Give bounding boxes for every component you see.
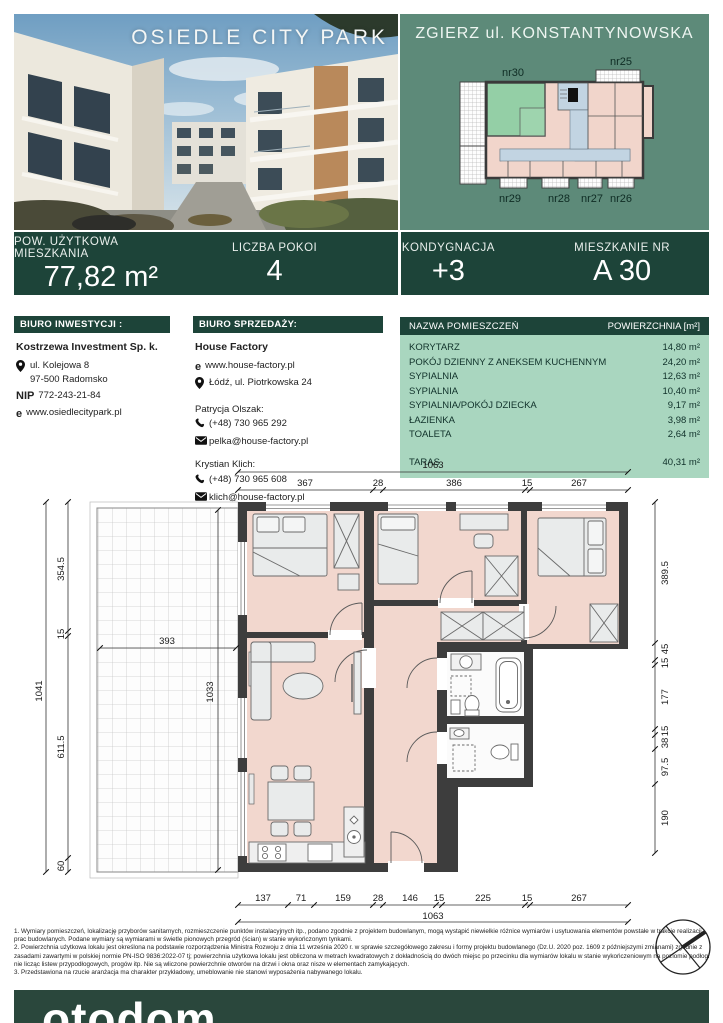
svg-text:225: 225 — [475, 893, 491, 904]
phone-icon — [195, 417, 209, 434]
svg-text:15: 15 — [434, 893, 445, 904]
location-panel: ZGIERZ ul. KONSTANTYNOWSKA — [400, 14, 709, 230]
flyer-page: OSIEDLE CITY PARK ZGIERZ ul. KONSTANTYNO… — [0, 0, 723, 1023]
table-row: SYPIALNIA12,63 m² — [400, 370, 709, 385]
agent-phone[interactable]: (+48) 730 965 292 — [209, 417, 383, 431]
svg-text:28: 28 — [373, 893, 384, 904]
web-prefix-icon: e — [16, 406, 22, 423]
key-balcony-nr25 — [596, 70, 640, 82]
svg-text:177: 177 — [660, 689, 671, 705]
svg-text:15: 15 — [56, 629, 67, 640]
svg-text:45: 45 — [660, 644, 671, 655]
svg-text:1041: 1041 — [34, 680, 45, 701]
investment-address-2: 97-500 Radomsko — [30, 374, 108, 385]
svg-text:354.5: 354.5 — [56, 557, 67, 581]
svg-text:15: 15 — [522, 893, 533, 904]
table-row: POKÓJ DZIENNY Z ANEKSEM KUCHENNYM24,20 m… — [400, 356, 709, 371]
otodom-logo: otodom — [42, 992, 217, 1023]
investment-office-card: BIURO INWESTYCJI : Kostrzewa Investment … — [14, 316, 170, 423]
svg-text:97.5: 97.5 — [660, 758, 671, 777]
investment-website[interactable]: www.osiedlecitypark.pl — [26, 406, 170, 420]
sales-website[interactable]: www.house-factory.pl — [205, 359, 383, 373]
legal-note-2: 2. Powierzchnia użytkowa lokalu jest okr… — [14, 944, 714, 969]
location-title: ZGIERZ ul. KONSTANTYNOWSKA — [400, 14, 709, 43]
summary-rooms-value: 4 — [267, 255, 283, 288]
summary-area-value: 77,82 m² — [44, 261, 158, 294]
summary-rooms-label: LICZBA POKOI — [232, 242, 317, 254]
sales-office-header: BIURO SPRZEDAŻY: — [193, 316, 383, 333]
svg-text:15: 15 — [522, 478, 533, 489]
footer-bar: otodom — [14, 990, 709, 1023]
sales-company: House Factory — [195, 340, 383, 356]
summary-area: POW. UŻYTKOWA MIESZKANIA 77,82 m² — [14, 232, 188, 295]
key-label-nr29: nr29 — [499, 193, 521, 205]
svg-text:367: 367 — [297, 478, 313, 489]
table-row: KORYTARZ14,80 m² — [400, 341, 709, 356]
mail-icon — [195, 435, 209, 450]
svg-text:15: 15 — [660, 726, 671, 737]
building-photo: OSIEDLE CITY PARK — [14, 14, 398, 230]
investment-office-header: BIURO INWESTYCJI : — [14, 316, 170, 333]
rooms-header-name: NAZWA POMIESZCZEŃ — [400, 321, 608, 332]
table-row: SYPIALNIA/POKÓJ DZIECKA9,17 m² — [400, 399, 709, 414]
table-row: SYPIALNIA10,40 m² — [400, 385, 709, 400]
svg-text:137: 137 — [255, 893, 271, 904]
key-label-nr28: nr28 — [548, 193, 570, 205]
svg-text:267: 267 — [571, 478, 587, 489]
summary-floor-label: KONDYGNACJA — [402, 242, 495, 254]
investment-company: Kostrzewa Investment Sp. k. — [16, 340, 170, 356]
key-label-nr30: nr30 — [502, 67, 524, 79]
svg-text:393: 393 — [159, 636, 175, 647]
summary-area-label: POW. UŻYTKOWA MIESZKANIA — [14, 236, 188, 260]
nip-value: 772-243-21-84 — [38, 388, 170, 403]
svg-text:386: 386 — [446, 478, 462, 489]
svg-text:1063: 1063 — [422, 460, 443, 471]
sales-address: Łódź, ul. Piotrkowska 24 — [209, 376, 383, 390]
svg-text:159: 159 — [335, 893, 351, 904]
table-row: TOALETA2,64 m² — [400, 428, 709, 443]
legal-notes: 1. Wymiary pomieszczeń, lokalizację przy… — [14, 928, 714, 977]
svg-text:190: 190 — [660, 810, 671, 826]
summary-rooms: LICZBA POKOI 4 — [188, 232, 362, 295]
svg-text:28: 28 — [373, 478, 384, 489]
location-pin-icon — [195, 376, 209, 394]
svg-text:146: 146 — [402, 893, 418, 904]
legal-note-1: 1. Wymiary pomieszczeń, lokalizację przy… — [14, 928, 714, 944]
summary-bar: POW. UŻYTKOWA MIESZKANIA 77,82 m² LICZBA… — [14, 232, 709, 295]
svg-text:71: 71 — [296, 893, 307, 904]
legal-note-3: 3. Przedstawiona na rzucie aranżacja ma … — [14, 969, 714, 977]
svg-text:389.5: 389.5 — [660, 561, 671, 585]
summary-separator — [398, 232, 401, 295]
investment-address-1: ul. Kolejowa 8 — [30, 360, 89, 371]
rooms-table-header: NAZWA POMIESZCZEŃ POWIERZCHNIA [m²] — [400, 317, 709, 335]
summary-floor: KONDYGNACJA +3 — [362, 232, 536, 295]
key-label-nr26: nr26 — [610, 193, 632, 205]
web-prefix-icon: e — [195, 359, 201, 376]
summary-floor-value: +3 — [432, 255, 465, 288]
agent-email[interactable]: pelka@house-factory.pl — [209, 435, 383, 449]
floor-key-plan: nr30 nr25 nr29 nr28 nr27 nr26 — [400, 46, 709, 230]
summary-unit-value: A 30 — [593, 255, 651, 288]
svg-text:1063: 1063 — [422, 911, 443, 922]
summary-unit-label: MIESZKANIE NR — [574, 242, 670, 254]
nip-label: NIP — [16, 388, 34, 405]
estate-name-title: OSIEDLE CITY PARK — [131, 26, 388, 50]
svg-text:267: 267 — [571, 893, 587, 904]
key-label-nr25: nr25 — [610, 56, 632, 68]
svg-text:611.5: 611.5 — [56, 735, 67, 758]
key-label-nr27: nr27 — [581, 193, 603, 205]
svg-text:15: 15 — [660, 658, 671, 669]
summary-unit: MIESZKANIE NR A 30 — [535, 232, 709, 295]
svg-text:38: 38 — [660, 738, 671, 749]
table-row: ŁAZIENKA3,98 m² — [400, 414, 709, 429]
svg-text:1033: 1033 — [205, 681, 216, 702]
svg-text:60: 60 — [56, 861, 67, 872]
agent-name: Patrycja Olszak: — [195, 403, 383, 417]
location-pin-icon — [16, 359, 30, 377]
key-terrace — [460, 82, 486, 146]
rooms-header-area: POWIERZCHNIA [m²] — [608, 321, 709, 332]
floor-plan: 1063 367 28 386 15 267 137 71 159 28 146… — [0, 452, 723, 930]
